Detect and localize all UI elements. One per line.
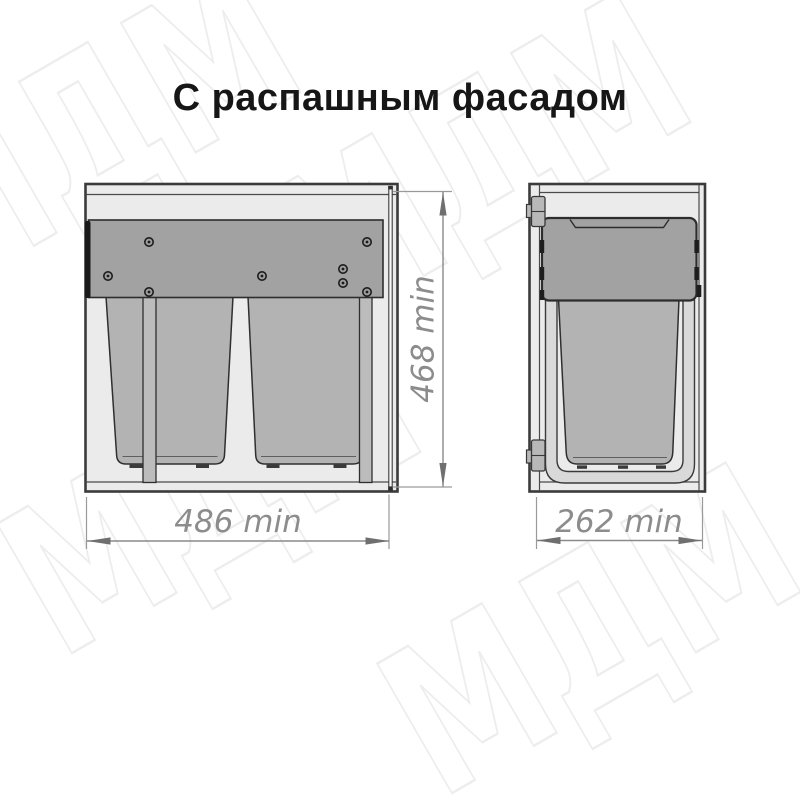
waste-bin-side	[559, 299, 680, 464]
arrowhead-right	[366, 537, 390, 544]
page-root: МДМ МДМ МДМ МДМ С распашным фасадом	[0, 0, 800, 800]
frame-post-left	[143, 297, 156, 483]
screw	[258, 272, 266, 280]
facade-cap-bottom	[388, 486, 393, 491]
arrowhead-bottom	[439, 463, 446, 487]
facade-cap-top	[388, 186, 393, 190]
lid-clip	[540, 290, 544, 300]
bin-foot	[334, 465, 347, 468]
dimension-label-depth: 262 min	[555, 504, 682, 540]
dimension-label-height: 468 min	[406, 275, 442, 402]
facade-edge-line	[389, 187, 392, 491]
bin-foot	[196, 465, 209, 468]
front-width-dimension: 486 min	[87, 495, 390, 550]
screw	[339, 265, 347, 273]
side-depth-dimension: 262 min	[537, 497, 703, 549]
lid-clip	[694, 267, 698, 280]
mounting-plate	[89, 220, 384, 298]
bin-foot	[130, 465, 143, 468]
screw	[363, 238, 371, 246]
bin-foot	[267, 465, 280, 468]
screw	[145, 288, 153, 296]
arrowhead-top	[439, 192, 446, 216]
bin-lid	[542, 218, 697, 301]
lid-clip	[697, 285, 702, 297]
bin-foot	[656, 465, 666, 468]
arrowhead-left	[87, 537, 111, 544]
screw	[363, 288, 371, 296]
lid-clip	[540, 240, 544, 253]
bin-foot	[577, 465, 587, 468]
waste-bin-left	[106, 297, 233, 465]
side-view	[527, 184, 706, 492]
front-height-dimension: 468 min	[393, 192, 453, 488]
waste-bin-right	[248, 297, 372, 465]
front-view	[85, 184, 398, 492]
screw	[145, 238, 153, 246]
drawing-canvas: 486 min 468 min	[0, 0, 800, 800]
lid-clip	[694, 240, 698, 253]
bin-foot	[618, 465, 628, 468]
frame-post-right	[360, 297, 373, 483]
dimension-label-width: 486 min	[174, 504, 301, 540]
plate-end-cap	[85, 221, 91, 298]
lid-clip	[540, 267, 544, 280]
screw	[104, 272, 112, 280]
screw	[339, 279, 347, 287]
